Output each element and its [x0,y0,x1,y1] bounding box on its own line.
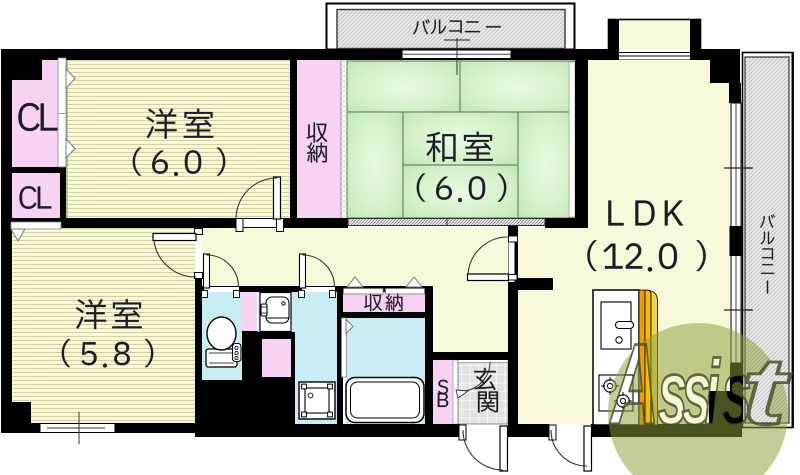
svg-text:i: i [705,341,721,444]
svg-text:A: A [609,320,659,448]
svg-text:t: t [741,338,791,445]
